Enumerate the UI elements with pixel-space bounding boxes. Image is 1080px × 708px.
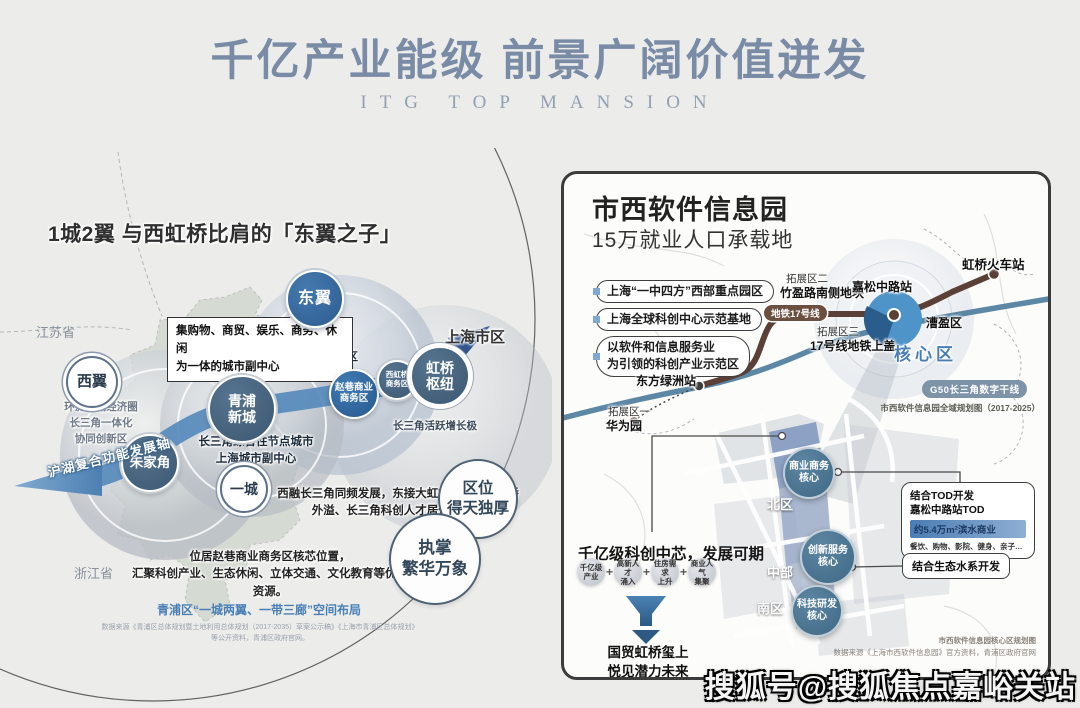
park-caption-1: 市西软件信息园核心区规划图 [764, 635, 1036, 646]
dongfang-station-label: 东方绿洲站 [636, 372, 696, 389]
park-tag-software-zone: 以软件和信息服务业 为引领的科创产业示范区 [596, 336, 750, 377]
district-south-label: 南区 [757, 598, 783, 617]
park-caption-2: 数据来源《上海市西软件信息园》官方资料，青浦区政府官网 [744, 647, 1036, 658]
node-one-city: 一城 [220, 465, 268, 513]
core-innovation-node: 创新服务 核心 [800, 529, 856, 585]
core-tech-node: 科技研发 核心 [791, 585, 843, 637]
zone1-sublabel: 华为园 [606, 417, 642, 434]
core-business-node: 商业商务 核心 [783, 447, 835, 499]
core-area-label: 核心区 [894, 340, 957, 365]
tod-detail: 餐饮、购物、影院、健身、亲子… [910, 541, 1026, 552]
flow-talent: 高新人才 涌入 [614, 558, 642, 586]
tod-info-box: 结合TOD开发 嘉松中路站TOD 约5.4万m²滨水商业 餐饮、购物、影院、健身… [901, 482, 1035, 559]
node-zhaoxiang-cbd: 赵巷商业 商务区 [329, 369, 379, 419]
flow-industry: 千亿级 产业 [577, 558, 605, 586]
flow-housing: 住房需求 上升 [651, 558, 679, 586]
flow-plus-3: + [680, 565, 687, 579]
sohu-watermark: 搜狐号@搜狐焦点嘉峪关站 [705, 662, 1076, 706]
shanghai-downtown-label: 上海市区 [445, 326, 505, 347]
eco-water-box: 结合生态水系开发 [902, 553, 1010, 579]
core-position-desc: 位居赵巷商业商务区核芯位置， 汇聚科创产业、生态休闲、立体交通、文化教育等优质资… [128, 549, 412, 601]
flow-plus-1: + [606, 565, 613, 579]
park-tag-innovation-base: 上海全球科创中心示范基地 [596, 308, 762, 331]
left-map-caption: 青浦区“一城两翼、一带三廊”空间布局 [114, 601, 404, 618]
district-north-label: 北区 [767, 494, 793, 513]
node-qingpu-newtown: 青浦 新城 [208, 375, 276, 443]
page-title: 千亿产业能级 前景广阔价值迸发 [0, 26, 1080, 88]
park-tag-west-key-zone: 上海“一中四方”西部重点园区 [596, 280, 774, 303]
software-park-panel: 市西软件信息园 15万就业人口承载地 上海“一中四方”西部重点园区 上海全球科创… [561, 171, 1051, 680]
infographic-canvas: 千亿产业能级 前景广阔价值迸发 ITG TOP MANSION 1城2翼 与西虹… [0, 0, 1080, 708]
node-hongqiao-hub: 虹桥 枢纽 [410, 346, 470, 406]
tod-line2: 嘉松中路站TOD [910, 503, 1026, 517]
badge-prosperity: 执掌 繁华万象 [389, 513, 481, 605]
jiangsu-province-label: 江苏省 [36, 322, 75, 341]
page-subtitle: ITG TOP MANSION [0, 92, 1080, 114]
node-west-wing: 西翼 [66, 356, 118, 408]
park-subtitle: 15万就业人口承载地 [592, 224, 793, 254]
zone3-sublabel: 17号线地铁上盖 [810, 337, 895, 354]
subcenter-callout: 集购物、商贸、娱乐、商务、休闲 为一体的城市副中心 [167, 317, 353, 382]
tod-highlight: 约5.4万m²滨水商业 [910, 520, 1026, 538]
left-map-title: 1城2翼 与西虹桥比肩的「东翼之子」 [48, 218, 401, 248]
park-map-caption: 市西软件信息园全域规划图（2017-2025） [844, 402, 1040, 414]
flow-commerce: 商业人气 集聚 [688, 558, 716, 586]
zhejiang-province-label: 浙江省 [74, 563, 113, 582]
g50-axis-pill: G50长三角数字干线 [922, 380, 1027, 398]
left-map-source-note: 数据来源《青浦区总体规划暨土地利用总体规划（2017-2035）草案公示稿》《上… [100, 622, 420, 644]
growth-pole-label: 长三角活跃增长极 [393, 418, 477, 433]
district-middle-label: 中部 [767, 562, 793, 581]
jiasong-station-label: 嘉松中路站 [852, 278, 912, 295]
flow-plus-2: + [643, 565, 650, 579]
tod-line1: 结合TOD开发 [910, 489, 1026, 503]
caoying-area-label: 漕盈区 [926, 314, 962, 331]
hongqiao-rail-label: 虹桥火车站 [962, 254, 1025, 273]
metro-line17-pill: 地铁17号线 [764, 305, 827, 321]
park-title: 市西软件信息园 [592, 188, 788, 227]
node-east-wing: 东翼 [286, 270, 344, 328]
funnel-conclusion: 国贸虹桥玺上 悦见潜力未来 [588, 644, 708, 680]
